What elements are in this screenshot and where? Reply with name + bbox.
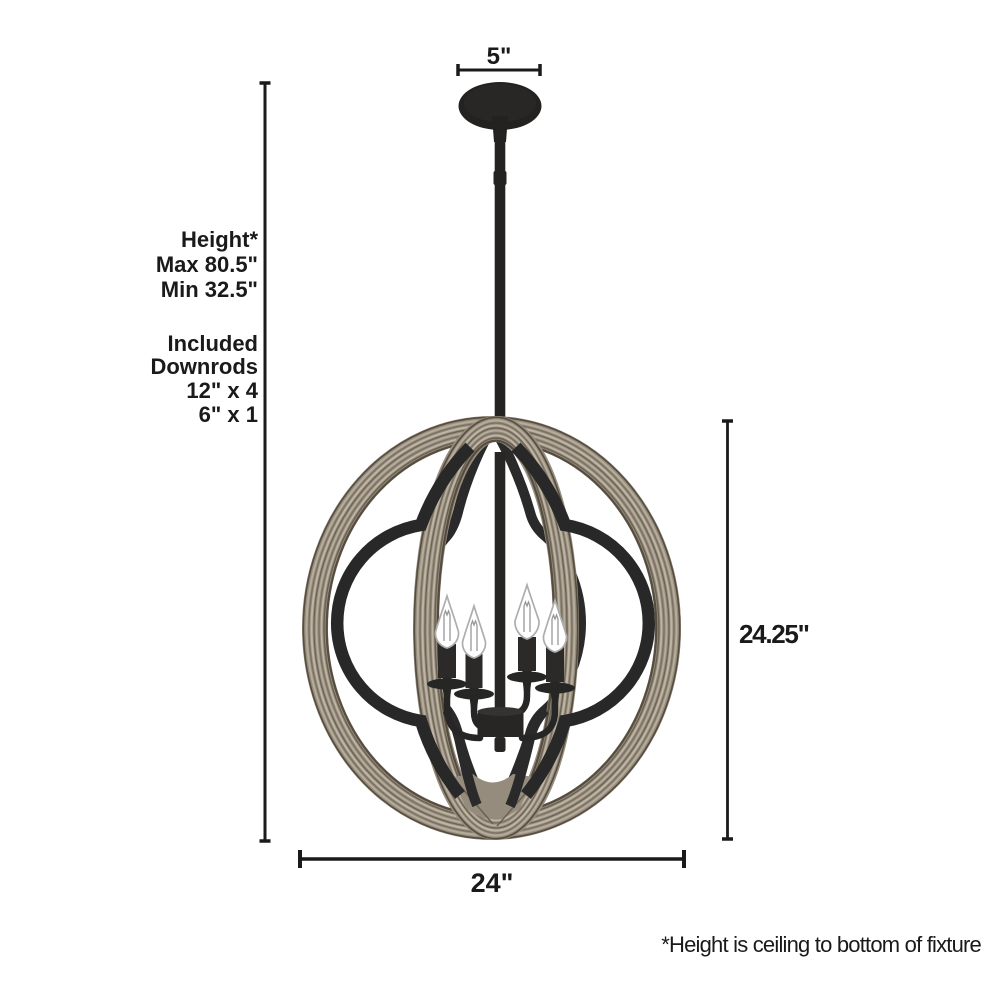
svg-text:Height*: Height* (181, 227, 258, 252)
svg-text:12" x 4: 12" x 4 (186, 378, 258, 403)
svg-text:24.25": 24.25" (739, 619, 809, 649)
svg-text:Max 80.5": Max 80.5" (156, 252, 258, 277)
svg-text:24": 24" (471, 868, 514, 898)
svg-text:*Height is ceiling to bottom o: *Height is ceiling to bottom of fixture (661, 932, 981, 957)
svg-text:5": 5" (487, 43, 512, 70)
svg-text:Downrods: Downrods (150, 354, 258, 379)
svg-text:6" x 1: 6" x 1 (199, 402, 258, 427)
svg-text:Included: Included (168, 331, 258, 356)
svg-text:Min 32.5": Min 32.5" (161, 277, 258, 302)
